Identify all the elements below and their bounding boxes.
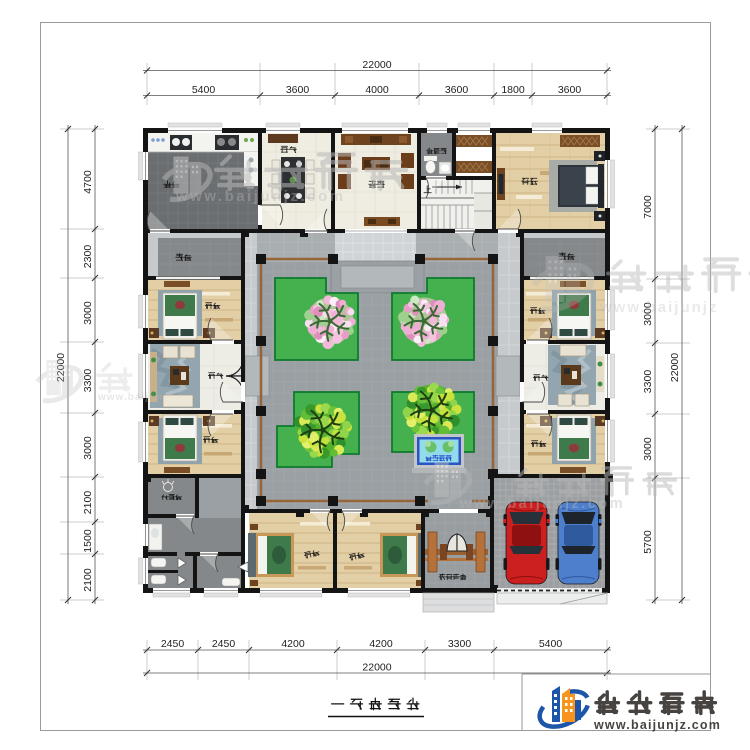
svg-text:3000: 3000 <box>642 437 654 461</box>
svg-text:3000: 3000 <box>82 436 94 460</box>
svg-text:4700: 4700 <box>82 170 94 194</box>
svg-text:4000: 4000 <box>365 84 389 96</box>
svg-text:2300: 2300 <box>82 245 94 269</box>
svg-text:3300: 3300 <box>642 370 654 394</box>
svg-text:3600: 3600 <box>558 84 582 96</box>
svg-text:22000: 22000 <box>362 662 391 674</box>
svg-text:2450: 2450 <box>161 638 185 650</box>
svg-text:1500: 1500 <box>82 529 94 553</box>
svg-text:3300: 3300 <box>82 369 94 393</box>
svg-text:7000: 7000 <box>642 195 654 219</box>
svg-text:5400: 5400 <box>539 638 563 650</box>
svg-text:www.baijunjz.com: www.baijunjz.com <box>459 496 625 512</box>
svg-text:22000: 22000 <box>362 59 391 71</box>
svg-text:5400: 5400 <box>192 84 216 96</box>
svg-text:3300: 3300 <box>448 638 472 650</box>
svg-text:3000: 3000 <box>82 301 94 325</box>
svg-text:www.baijunjz: www.baijunjz <box>599 299 718 316</box>
svg-text:3600: 3600 <box>445 84 469 96</box>
svg-text:22000: 22000 <box>669 353 681 382</box>
svg-text:4200: 4200 <box>281 638 305 650</box>
svg-text:1800: 1800 <box>501 84 525 96</box>
svg-text:4200: 4200 <box>369 638 393 650</box>
svg-text:3600: 3600 <box>286 84 310 96</box>
svg-text:www.baijunjz.com: www.baijunjz.com <box>175 188 345 205</box>
svg-text:www.baijun: www.baijun <box>97 392 163 403</box>
svg-text:www.baijunjz.com: www.baijunjz.com <box>593 718 721 732</box>
svg-text:2100: 2100 <box>82 491 94 515</box>
svg-text:2100: 2100 <box>82 568 94 592</box>
svg-text:5700: 5700 <box>642 530 654 554</box>
svg-text:2450: 2450 <box>212 638 236 650</box>
